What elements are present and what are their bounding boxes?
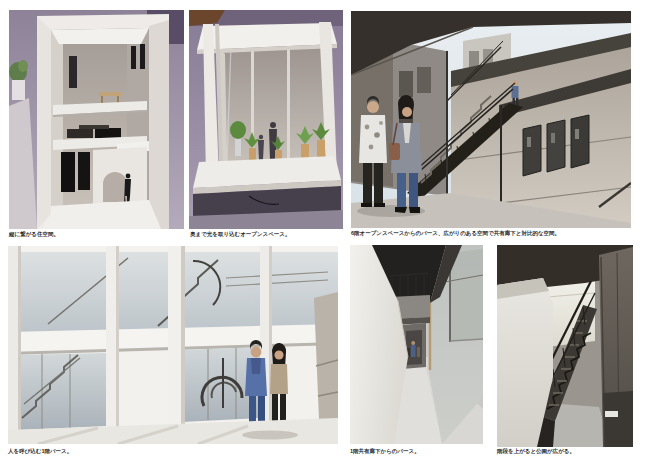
presentation-board: 縦に繋がる住空間。	[0, 0, 650, 460]
black-door	[78, 152, 90, 190]
photo-model-vertical-living	[9, 10, 184, 229]
render-1f-corridor	[350, 245, 483, 444]
render-1f-entrance	[8, 246, 338, 444]
caption-model-vertical-living: 縦に繋がる住空間。	[9, 231, 59, 238]
model-vertical-living-image	[9, 10, 184, 229]
render-6f-open-space	[351, 11, 631, 228]
model-open-space-image	[189, 10, 343, 229]
caption-model-open-space: 奥まで光を取り込むオープンスペース。	[190, 231, 290, 238]
render-6f-image	[351, 11, 631, 228]
caption-render-1f-entrance: 人を呼び込む1階パース。	[8, 448, 72, 455]
render-corridor-image	[350, 245, 483, 444]
render-stair-image	[497, 245, 633, 447]
window-slit	[140, 44, 145, 69]
render-stair-to-park	[497, 245, 633, 447]
black-door	[61, 152, 75, 192]
right-wall	[599, 247, 633, 447]
caption-render-stair-to-park: 階段を上がると公園が広がる。	[497, 448, 575, 455]
caption-render-6f-open-space: 6階オープンスペースからのパース、広がりのある空間で共有廊下と対比的な空間。	[351, 230, 560, 237]
arched-wall	[93, 147, 147, 204]
window-slit	[131, 46, 136, 69]
photo-model-open-space	[189, 10, 343, 229]
render-1f-image	[8, 246, 338, 444]
caption-render-1f-corridor: 1階共有廊下からのパース。	[350, 448, 420, 455]
